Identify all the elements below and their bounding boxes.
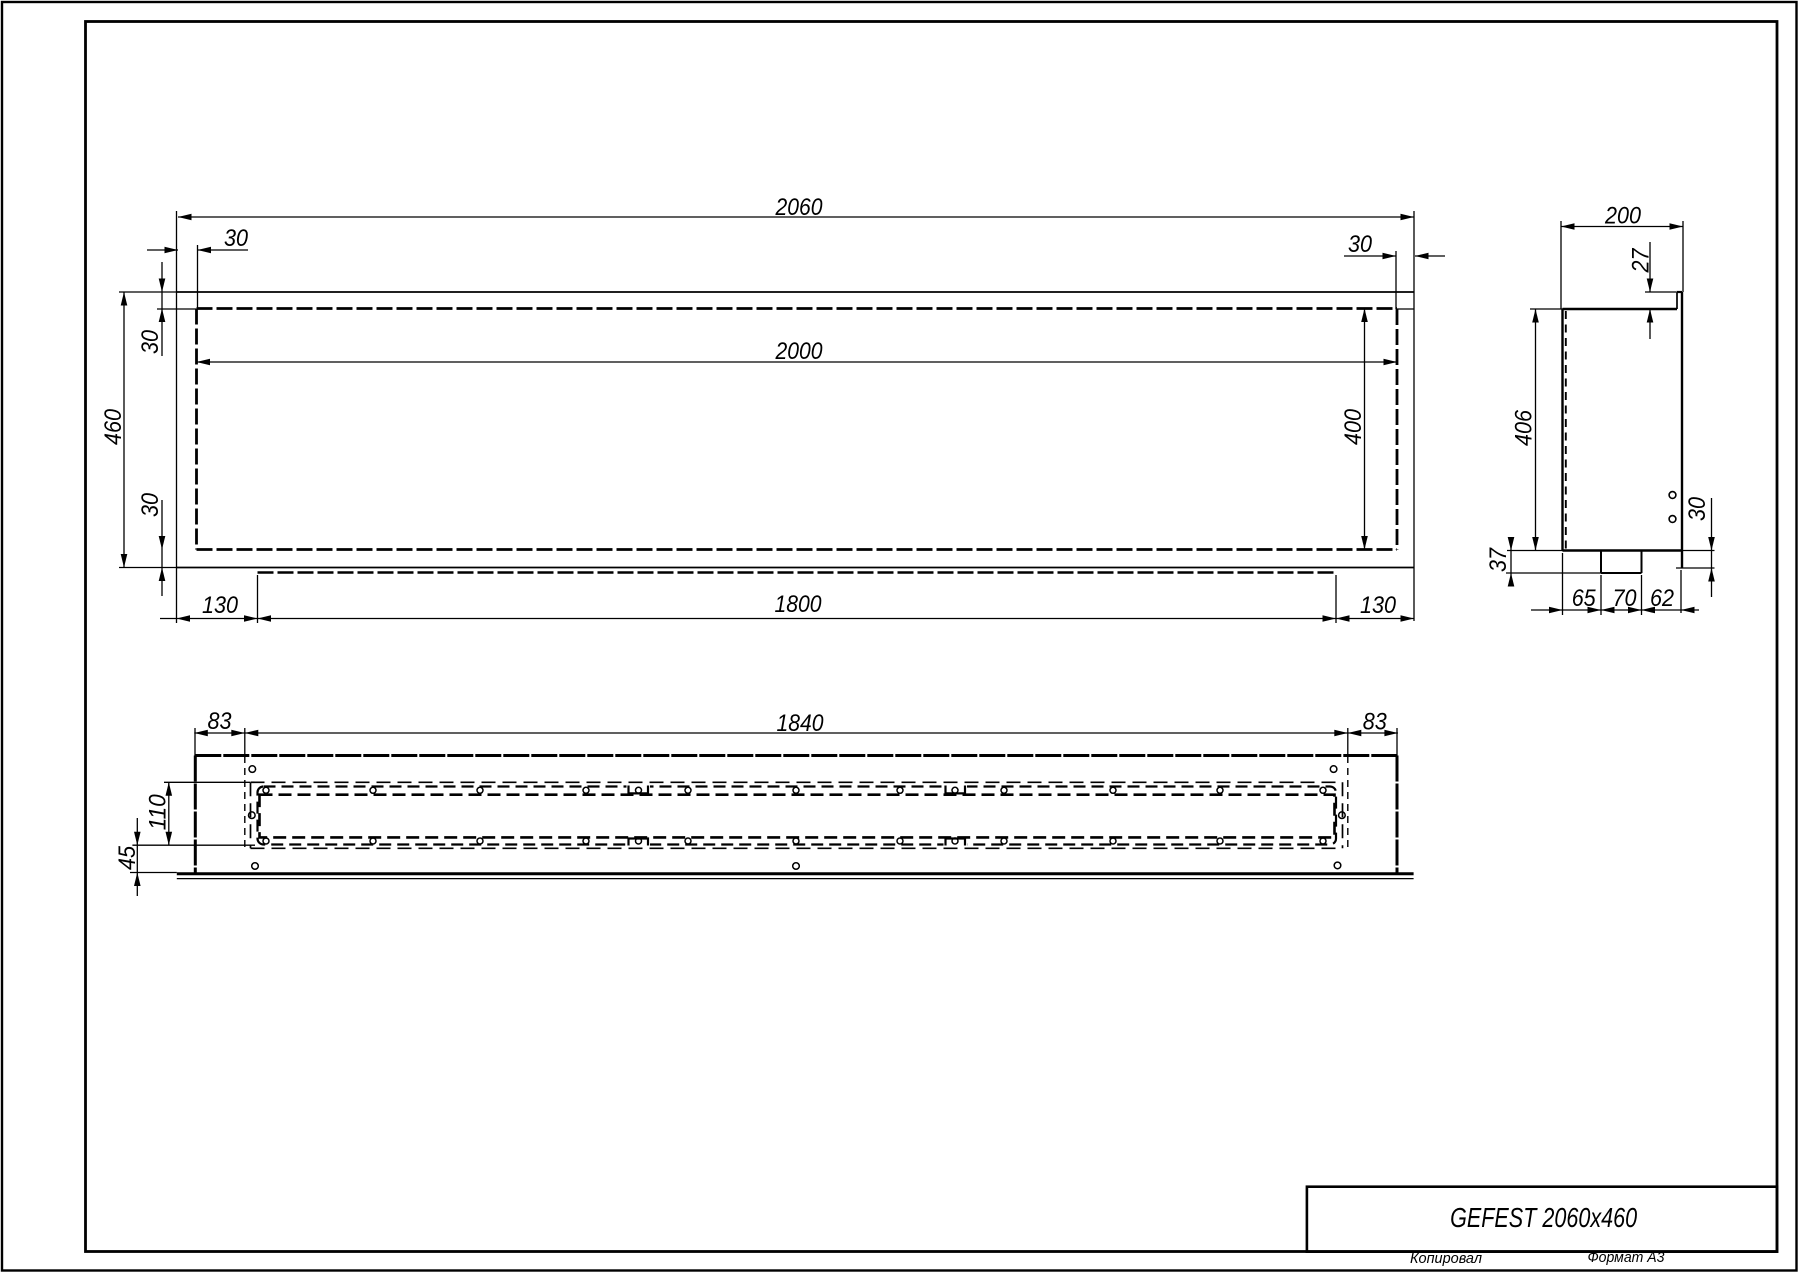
svg-text:83: 83 <box>1363 709 1388 736</box>
svg-text:70: 70 <box>1613 585 1638 612</box>
svg-text:Копировал: Копировал <box>1410 1250 1483 1267</box>
svg-text:Формат А3: Формат А3 <box>1588 1249 1666 1266</box>
svg-text:30: 30 <box>137 329 164 354</box>
svg-text:1800: 1800 <box>775 591 823 618</box>
svg-text:1840: 1840 <box>777 710 825 737</box>
svg-text:30: 30 <box>137 492 164 517</box>
svg-text:37: 37 <box>1485 547 1512 572</box>
svg-text:406: 406 <box>1511 409 1538 446</box>
svg-text:130: 130 <box>1360 592 1397 619</box>
svg-text:83: 83 <box>208 708 233 735</box>
svg-text:200: 200 <box>1604 203 1641 230</box>
svg-text:30: 30 <box>224 225 249 252</box>
svg-text:110: 110 <box>145 794 172 831</box>
svg-text:65: 65 <box>1572 585 1597 612</box>
svg-text:130: 130 <box>202 592 239 619</box>
svg-text:400: 400 <box>1340 408 1367 445</box>
svg-text:GEFEST 2060x460: GEFEST 2060x460 <box>1450 1202 1637 1233</box>
svg-text:460: 460 <box>100 408 127 445</box>
svg-text:30: 30 <box>1348 231 1373 258</box>
svg-text:27: 27 <box>1628 247 1655 273</box>
svg-text:30: 30 <box>1684 496 1711 521</box>
svg-text:2000: 2000 <box>775 338 823 365</box>
svg-text:62: 62 <box>1650 585 1674 612</box>
svg-text:45: 45 <box>114 845 141 870</box>
svg-text:2060: 2060 <box>775 194 823 221</box>
